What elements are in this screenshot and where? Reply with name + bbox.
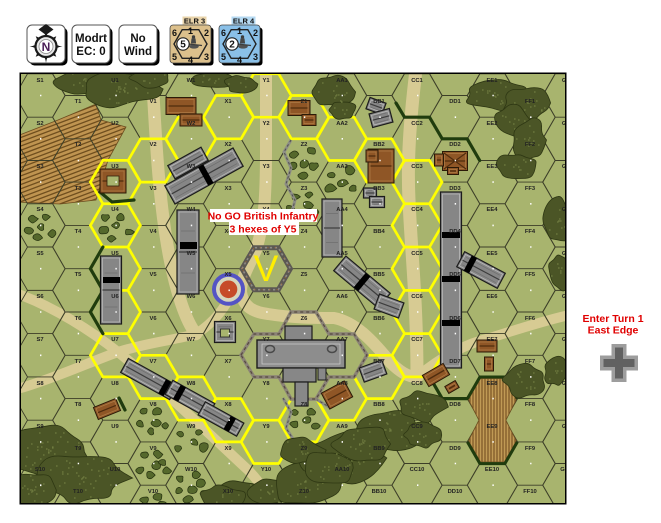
svg-text:2: 2 bbox=[229, 40, 235, 51]
svg-text:BB2: BB2 bbox=[373, 142, 385, 148]
svg-text:4: 4 bbox=[188, 55, 193, 65]
svg-text:CC1: CC1 bbox=[411, 78, 423, 84]
svg-text:1: 1 bbox=[237, 26, 242, 36]
svg-text:CC6: CC6 bbox=[411, 294, 423, 300]
svg-text:Y8: Y8 bbox=[262, 381, 270, 387]
svg-text:Y3: Y3 bbox=[262, 164, 270, 170]
svg-text:T3: T3 bbox=[75, 186, 83, 192]
svg-text:3: 3 bbox=[204, 52, 209, 62]
svg-text:AA8: AA8 bbox=[336, 381, 348, 387]
svg-text:Z9: Z9 bbox=[301, 446, 309, 452]
svg-text:BB3: BB3 bbox=[373, 186, 385, 192]
svg-text:CC8: CC8 bbox=[411, 381, 423, 387]
svg-text:Y9: Y9 bbox=[262, 424, 270, 430]
svg-text:CC2: CC2 bbox=[411, 121, 423, 127]
svg-text:Y7: Y7 bbox=[262, 337, 269, 343]
svg-text:Wind: Wind bbox=[124, 46, 152, 58]
svg-text:DD1: DD1 bbox=[449, 99, 461, 105]
svg-text:T2: T2 bbox=[75, 142, 82, 148]
svg-text:Y2: Y2 bbox=[262, 121, 269, 127]
svg-text:V10: V10 bbox=[148, 489, 158, 495]
svg-text:EE9: EE9 bbox=[487, 424, 499, 430]
svg-text:1: 1 bbox=[188, 26, 193, 36]
svg-text:Z10: Z10 bbox=[299, 489, 309, 495]
svg-text:U5: U5 bbox=[111, 251, 119, 257]
svg-text:AA2: AA2 bbox=[336, 121, 348, 127]
svg-text:T7: T7 bbox=[75, 359, 82, 365]
svg-text:6: 6 bbox=[172, 28, 177, 38]
svg-text:W9: W9 bbox=[187, 424, 196, 430]
svg-text:FF7: FF7 bbox=[525, 359, 535, 365]
svg-text:W10: W10 bbox=[185, 467, 197, 473]
svg-text:S10: S10 bbox=[35, 467, 45, 473]
svg-text:ELR 3: ELR 3 bbox=[184, 17, 205, 26]
svg-text:DD5: DD5 bbox=[449, 272, 461, 278]
svg-text:Y6: Y6 bbox=[262, 294, 270, 300]
svg-text:EE4: EE4 bbox=[487, 207, 499, 213]
svg-text:V6: V6 bbox=[149, 316, 157, 322]
svg-text:6: 6 bbox=[221, 28, 226, 38]
svg-text:FF6: FF6 bbox=[525, 316, 536, 322]
svg-text:FF3: FF3 bbox=[525, 186, 536, 192]
svg-text:W3: W3 bbox=[187, 164, 196, 170]
svg-text:V1: V1 bbox=[149, 99, 157, 105]
svg-text:V3: V3 bbox=[149, 186, 157, 192]
svg-text:No GO British Infantry: No GO British Infantry bbox=[208, 211, 319, 223]
svg-text:T1: T1 bbox=[75, 99, 83, 105]
svg-text:Z6: Z6 bbox=[301, 316, 309, 322]
svg-text:S7: S7 bbox=[36, 337, 43, 343]
svg-text:V4: V4 bbox=[149, 229, 157, 235]
svg-text:S8: S8 bbox=[36, 381, 44, 387]
svg-text:EE8: EE8 bbox=[487, 381, 499, 387]
svg-text:AA9: AA9 bbox=[336, 424, 348, 430]
svg-text:FF4: FF4 bbox=[525, 229, 536, 235]
svg-text:DD10: DD10 bbox=[448, 489, 463, 495]
svg-text:N: N bbox=[42, 40, 51, 54]
svg-text:Z5: Z5 bbox=[301, 272, 309, 278]
svg-text:Z1: Z1 bbox=[301, 99, 309, 105]
svg-text:5: 5 bbox=[221, 52, 226, 62]
svg-text:X10: X10 bbox=[223, 489, 233, 495]
svg-text:X1: X1 bbox=[224, 99, 232, 105]
svg-text:X6: X6 bbox=[224, 316, 232, 322]
svg-text:T4: T4 bbox=[75, 229, 83, 235]
svg-text:2: 2 bbox=[204, 28, 209, 38]
svg-text:X5: X5 bbox=[224, 272, 232, 278]
svg-text:S4: S4 bbox=[36, 207, 44, 213]
svg-text:W4: W4 bbox=[187, 207, 196, 213]
svg-text:W1: W1 bbox=[187, 78, 196, 84]
svg-text:EE1: EE1 bbox=[487, 78, 499, 84]
svg-text:5: 5 bbox=[172, 52, 177, 62]
svg-text:Modrt: Modrt bbox=[75, 33, 107, 45]
svg-text:DD9: DD9 bbox=[449, 446, 461, 452]
svg-text:CC7: CC7 bbox=[411, 337, 423, 343]
svg-text:DD2: DD2 bbox=[449, 142, 461, 148]
svg-text:AA3: AA3 bbox=[336, 164, 348, 170]
svg-text:T8: T8 bbox=[75, 402, 83, 408]
svg-text:DD6: DD6 bbox=[449, 316, 461, 322]
svg-text:EE6: EE6 bbox=[487, 294, 499, 300]
svg-text:EE10: EE10 bbox=[485, 467, 499, 473]
svg-text:AA6: AA6 bbox=[336, 294, 348, 300]
svg-text:CC3: CC3 bbox=[411, 164, 423, 170]
svg-text:T9: T9 bbox=[75, 446, 83, 452]
svg-text:BB1: BB1 bbox=[373, 99, 385, 105]
svg-text:S5: S5 bbox=[36, 251, 44, 257]
svg-text:CC10: CC10 bbox=[410, 467, 425, 473]
svg-text:V5: V5 bbox=[149, 272, 157, 278]
svg-text:DD4: DD4 bbox=[449, 229, 461, 235]
svg-text:U7: U7 bbox=[111, 337, 118, 343]
svg-text:X2: X2 bbox=[224, 142, 231, 148]
svg-text:U2: U2 bbox=[111, 121, 118, 127]
svg-text:S1: S1 bbox=[36, 78, 44, 84]
svg-text:U1: U1 bbox=[111, 78, 119, 84]
svg-text:4: 4 bbox=[237, 55, 242, 65]
svg-text:W7: W7 bbox=[187, 337, 196, 343]
svg-text:FF1: FF1 bbox=[525, 99, 536, 105]
svg-text:BB7: BB7 bbox=[373, 359, 385, 365]
svg-text:EE7: EE7 bbox=[487, 337, 498, 343]
svg-text:W2: W2 bbox=[187, 121, 196, 127]
svg-text:No: No bbox=[130, 33, 145, 45]
svg-text:U4: U4 bbox=[111, 207, 119, 213]
svg-text:U8: U8 bbox=[111, 381, 119, 387]
svg-text:FF9: FF9 bbox=[525, 446, 536, 452]
svg-text:V8: V8 bbox=[149, 402, 157, 408]
svg-text:X7: X7 bbox=[224, 359, 231, 365]
svg-text:S3: S3 bbox=[36, 164, 44, 170]
svg-text:W5: W5 bbox=[187, 251, 196, 257]
svg-text:T6: T6 bbox=[75, 316, 83, 322]
svg-text:BB5: BB5 bbox=[373, 272, 385, 278]
svg-text:AA10: AA10 bbox=[335, 467, 350, 473]
svg-text:CC9: CC9 bbox=[411, 424, 423, 430]
svg-text:AA4: AA4 bbox=[336, 207, 348, 213]
svg-text:U10: U10 bbox=[110, 467, 121, 473]
svg-text:Enter Turn 1: Enter Turn 1 bbox=[582, 313, 643, 325]
svg-text:Y5: Y5 bbox=[262, 251, 270, 257]
svg-text:W8: W8 bbox=[187, 381, 196, 387]
svg-text:Y10: Y10 bbox=[261, 467, 271, 473]
svg-text:BB8: BB8 bbox=[373, 402, 385, 408]
svg-text:Z3: Z3 bbox=[301, 186, 309, 192]
svg-text:BB6: BB6 bbox=[373, 316, 385, 322]
svg-text:EC: 0: EC: 0 bbox=[76, 46, 105, 58]
svg-text:AA1: AA1 bbox=[336, 78, 348, 84]
svg-text:ELR 4: ELR 4 bbox=[233, 17, 255, 26]
svg-text:3 hexes of Y5: 3 hexes of Y5 bbox=[230, 224, 297, 236]
svg-text:DD3: DD3 bbox=[449, 186, 461, 192]
svg-text:2: 2 bbox=[253, 28, 258, 38]
svg-text:BB4: BB4 bbox=[373, 229, 385, 235]
svg-text:Z8: Z8 bbox=[301, 402, 309, 408]
svg-text:5: 5 bbox=[180, 40, 186, 51]
svg-text:V7: V7 bbox=[149, 359, 156, 365]
svg-text:V2: V2 bbox=[149, 142, 156, 148]
svg-text:East Edge: East Edge bbox=[588, 325, 639, 337]
svg-text:CC4: CC4 bbox=[411, 207, 423, 213]
svg-text:AA7: AA7 bbox=[336, 337, 348, 343]
svg-text:S9: S9 bbox=[36, 424, 44, 430]
svg-text:3: 3 bbox=[253, 52, 258, 62]
svg-text:U3: U3 bbox=[111, 164, 119, 170]
svg-text:FF2: FF2 bbox=[525, 142, 535, 148]
svg-text:FF5: FF5 bbox=[525, 272, 536, 278]
svg-text:AA5: AA5 bbox=[336, 251, 348, 257]
svg-text:T10: T10 bbox=[73, 489, 83, 495]
svg-text:X3: X3 bbox=[224, 186, 232, 192]
svg-text:BB10: BB10 bbox=[372, 489, 387, 495]
svg-text:EE3: EE3 bbox=[487, 164, 499, 170]
svg-text:DD8: DD8 bbox=[449, 402, 461, 408]
svg-text:FF8: FF8 bbox=[525, 402, 536, 408]
svg-text:S6: S6 bbox=[36, 294, 44, 300]
svg-text:U9: U9 bbox=[111, 424, 119, 430]
svg-text:U6: U6 bbox=[111, 294, 119, 300]
svg-text:Z2: Z2 bbox=[301, 142, 308, 148]
svg-text:EE5: EE5 bbox=[487, 251, 499, 257]
svg-text:EE2: EE2 bbox=[487, 121, 498, 127]
svg-text:X8: X8 bbox=[224, 402, 232, 408]
svg-text:DD7: DD7 bbox=[449, 359, 461, 365]
svg-text:Z4: Z4 bbox=[301, 229, 309, 235]
svg-text:BB9: BB9 bbox=[373, 446, 385, 452]
svg-text:FF10: FF10 bbox=[523, 489, 537, 495]
svg-text:Y1: Y1 bbox=[262, 78, 270, 84]
svg-text:CC5: CC5 bbox=[411, 251, 423, 257]
svg-text:X9: X9 bbox=[224, 446, 232, 452]
svg-text:S2: S2 bbox=[36, 121, 43, 127]
svg-text:W6: W6 bbox=[187, 294, 196, 300]
svg-text:T5: T5 bbox=[75, 272, 83, 278]
svg-text:V9: V9 bbox=[149, 446, 157, 452]
